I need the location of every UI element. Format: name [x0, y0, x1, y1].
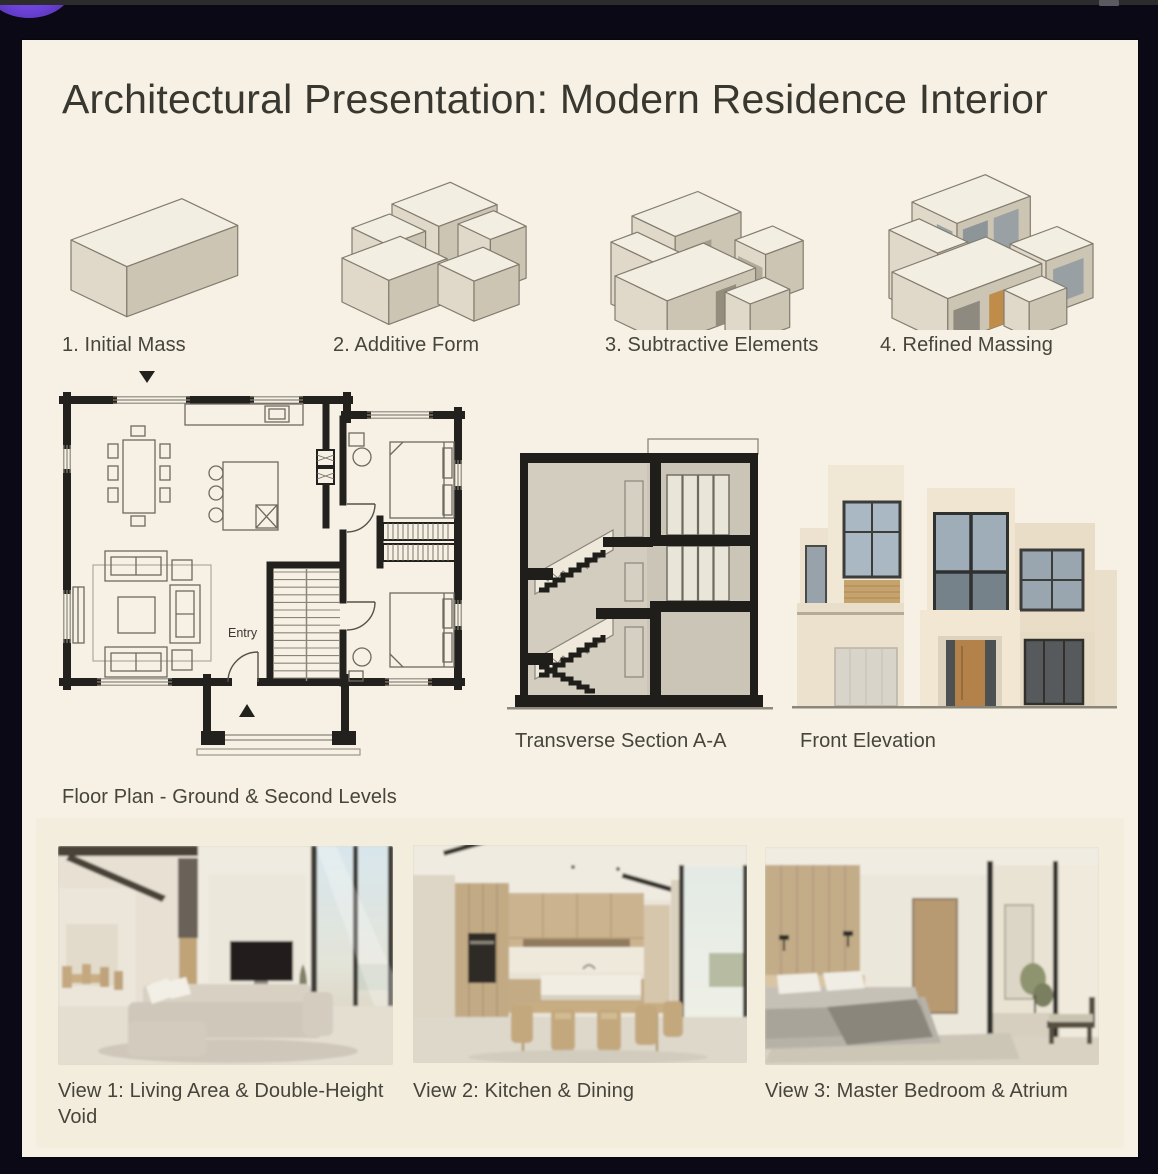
app-window: Architectural Presentation: Modern Resid… [0, 0, 1158, 1174]
view-3-caption: View 3: Master Bedroom & Atrium [765, 1078, 1105, 1104]
floor-plan-drawing: Entry [45, 365, 465, 767]
massing-step-2-label: 2. Additive Form [333, 332, 479, 358]
massing-step-2-diagram [340, 152, 535, 328]
massing-step-4-label: 4. Refined Massing [880, 332, 1053, 358]
window-control-mark [1099, 0, 1119, 6]
elevation-image [792, 460, 1122, 712]
massing-step-1-label: 1. Initial Mass [62, 332, 186, 358]
view-2-caption: View 2: Kitchen & Dining [413, 1078, 747, 1104]
window-top-bar [0, 0, 1158, 5]
view-3-photo [765, 847, 1099, 1065]
floor-plan-caption: Floor Plan - Ground & Second Levels [62, 784, 397, 810]
section-caption: Transverse Section A-A [515, 728, 727, 754]
massing-step-3-label: 3. Subtractive Elements [605, 332, 819, 358]
view-1-caption: View 1: Living Area & Double-Height Void [58, 1078, 408, 1131]
massing-step-4-diagram [884, 148, 1109, 330]
presentation-board: Architectural Presentation: Modern Resid… [22, 40, 1138, 1157]
elevation-caption: Front Elevation [800, 728, 936, 754]
massing-step-3-diagram [607, 154, 817, 330]
section-drawing [505, 437, 775, 717]
massing-step-1-diagram [65, 168, 275, 326]
page-title: Architectural Presentation: Modern Resid… [62, 76, 1048, 123]
view-1-photo [58, 846, 393, 1065]
view-2-photo [413, 845, 747, 1063]
entry-label: Entry [228, 626, 258, 640]
